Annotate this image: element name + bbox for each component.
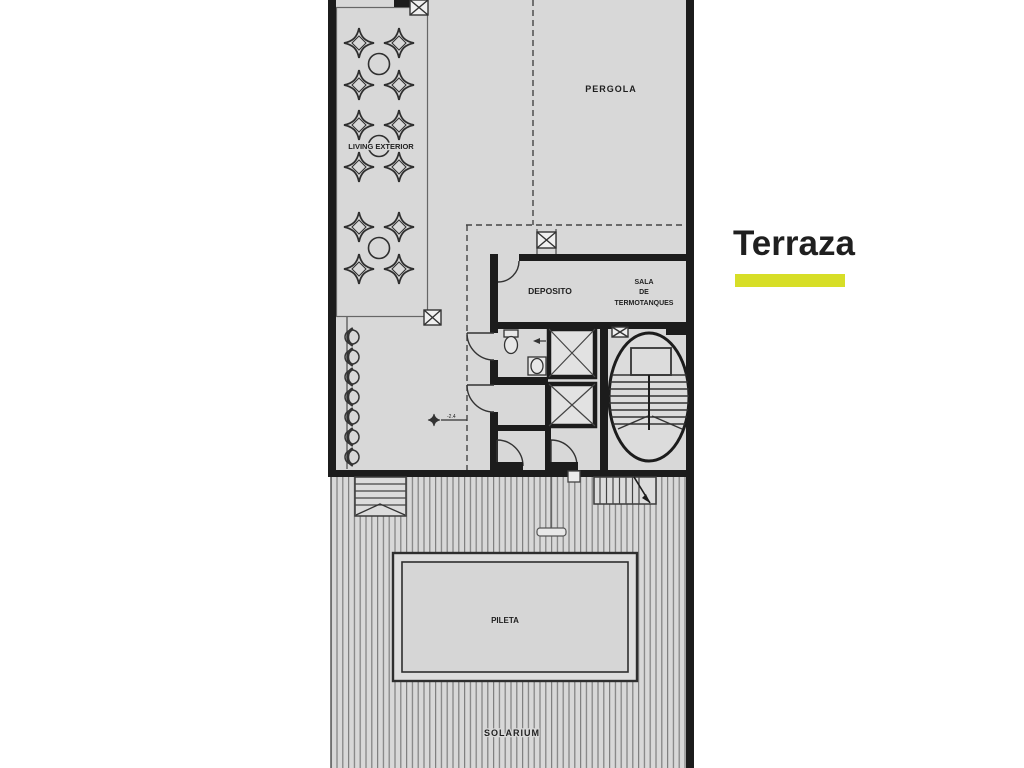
deck-stair-left bbox=[355, 477, 406, 516]
column-marker bbox=[612, 327, 628, 337]
door-threshold bbox=[545, 462, 578, 471]
elevator-shaft bbox=[549, 329, 595, 377]
svg-text:SALA: SALA bbox=[634, 279, 653, 286]
side-chair bbox=[345, 429, 359, 446]
pergola-label: PERGOLA bbox=[585, 84, 637, 94]
svg-text:DE: DE bbox=[639, 289, 649, 296]
living-exterior-label: LIVING EXTERIOR bbox=[348, 142, 414, 151]
sink-icon bbox=[528, 357, 546, 375]
left-wall bbox=[328, 0, 336, 474]
deposito-top-wall bbox=[519, 254, 694, 261]
side-chair bbox=[345, 389, 359, 406]
stair-top-wall-stub bbox=[666, 326, 686, 335]
floor-plan-drawing: -2.4 bbox=[0, 0, 1024, 768]
deck-edge-wall bbox=[328, 470, 694, 477]
column-marker bbox=[410, 0, 428, 15]
side-chair bbox=[345, 329, 359, 346]
side-chair bbox=[345, 369, 359, 386]
corridor-wall bbox=[490, 425, 548, 431]
side-chair bbox=[345, 409, 359, 426]
title-accent-bar bbox=[735, 274, 845, 287]
column-marker bbox=[537, 232, 556, 248]
deposito-label: DEPOSITO bbox=[528, 286, 572, 296]
solarium-label: SOLARIUM bbox=[484, 728, 540, 738]
core-left-wall bbox=[490, 254, 498, 333]
svg-text:TERMOTANQUES: TERMOTANQUES bbox=[615, 300, 674, 307]
deck-stair-right bbox=[594, 477, 656, 504]
level-value: -2.4 bbox=[447, 414, 456, 420]
terrace-floor-plan-page: -2.4 bbox=[0, 0, 1024, 768]
side-chair bbox=[345, 349, 359, 366]
side-chair bbox=[345, 449, 359, 466]
pileta-label: PILETA bbox=[491, 616, 519, 625]
bathroom-bottom-wall bbox=[490, 377, 548, 385]
elevator-shaft bbox=[549, 384, 595, 426]
spiral-staircase bbox=[609, 333, 689, 461]
deck-edge-marker bbox=[568, 471, 580, 482]
door-threshold bbox=[491, 462, 523, 471]
stair-left-wall bbox=[600, 326, 608, 470]
toilet-icon bbox=[504, 330, 518, 354]
top-wall-stub bbox=[394, 0, 411, 7]
column-marker bbox=[424, 310, 441, 325]
page-title: Terraza bbox=[733, 224, 855, 263]
